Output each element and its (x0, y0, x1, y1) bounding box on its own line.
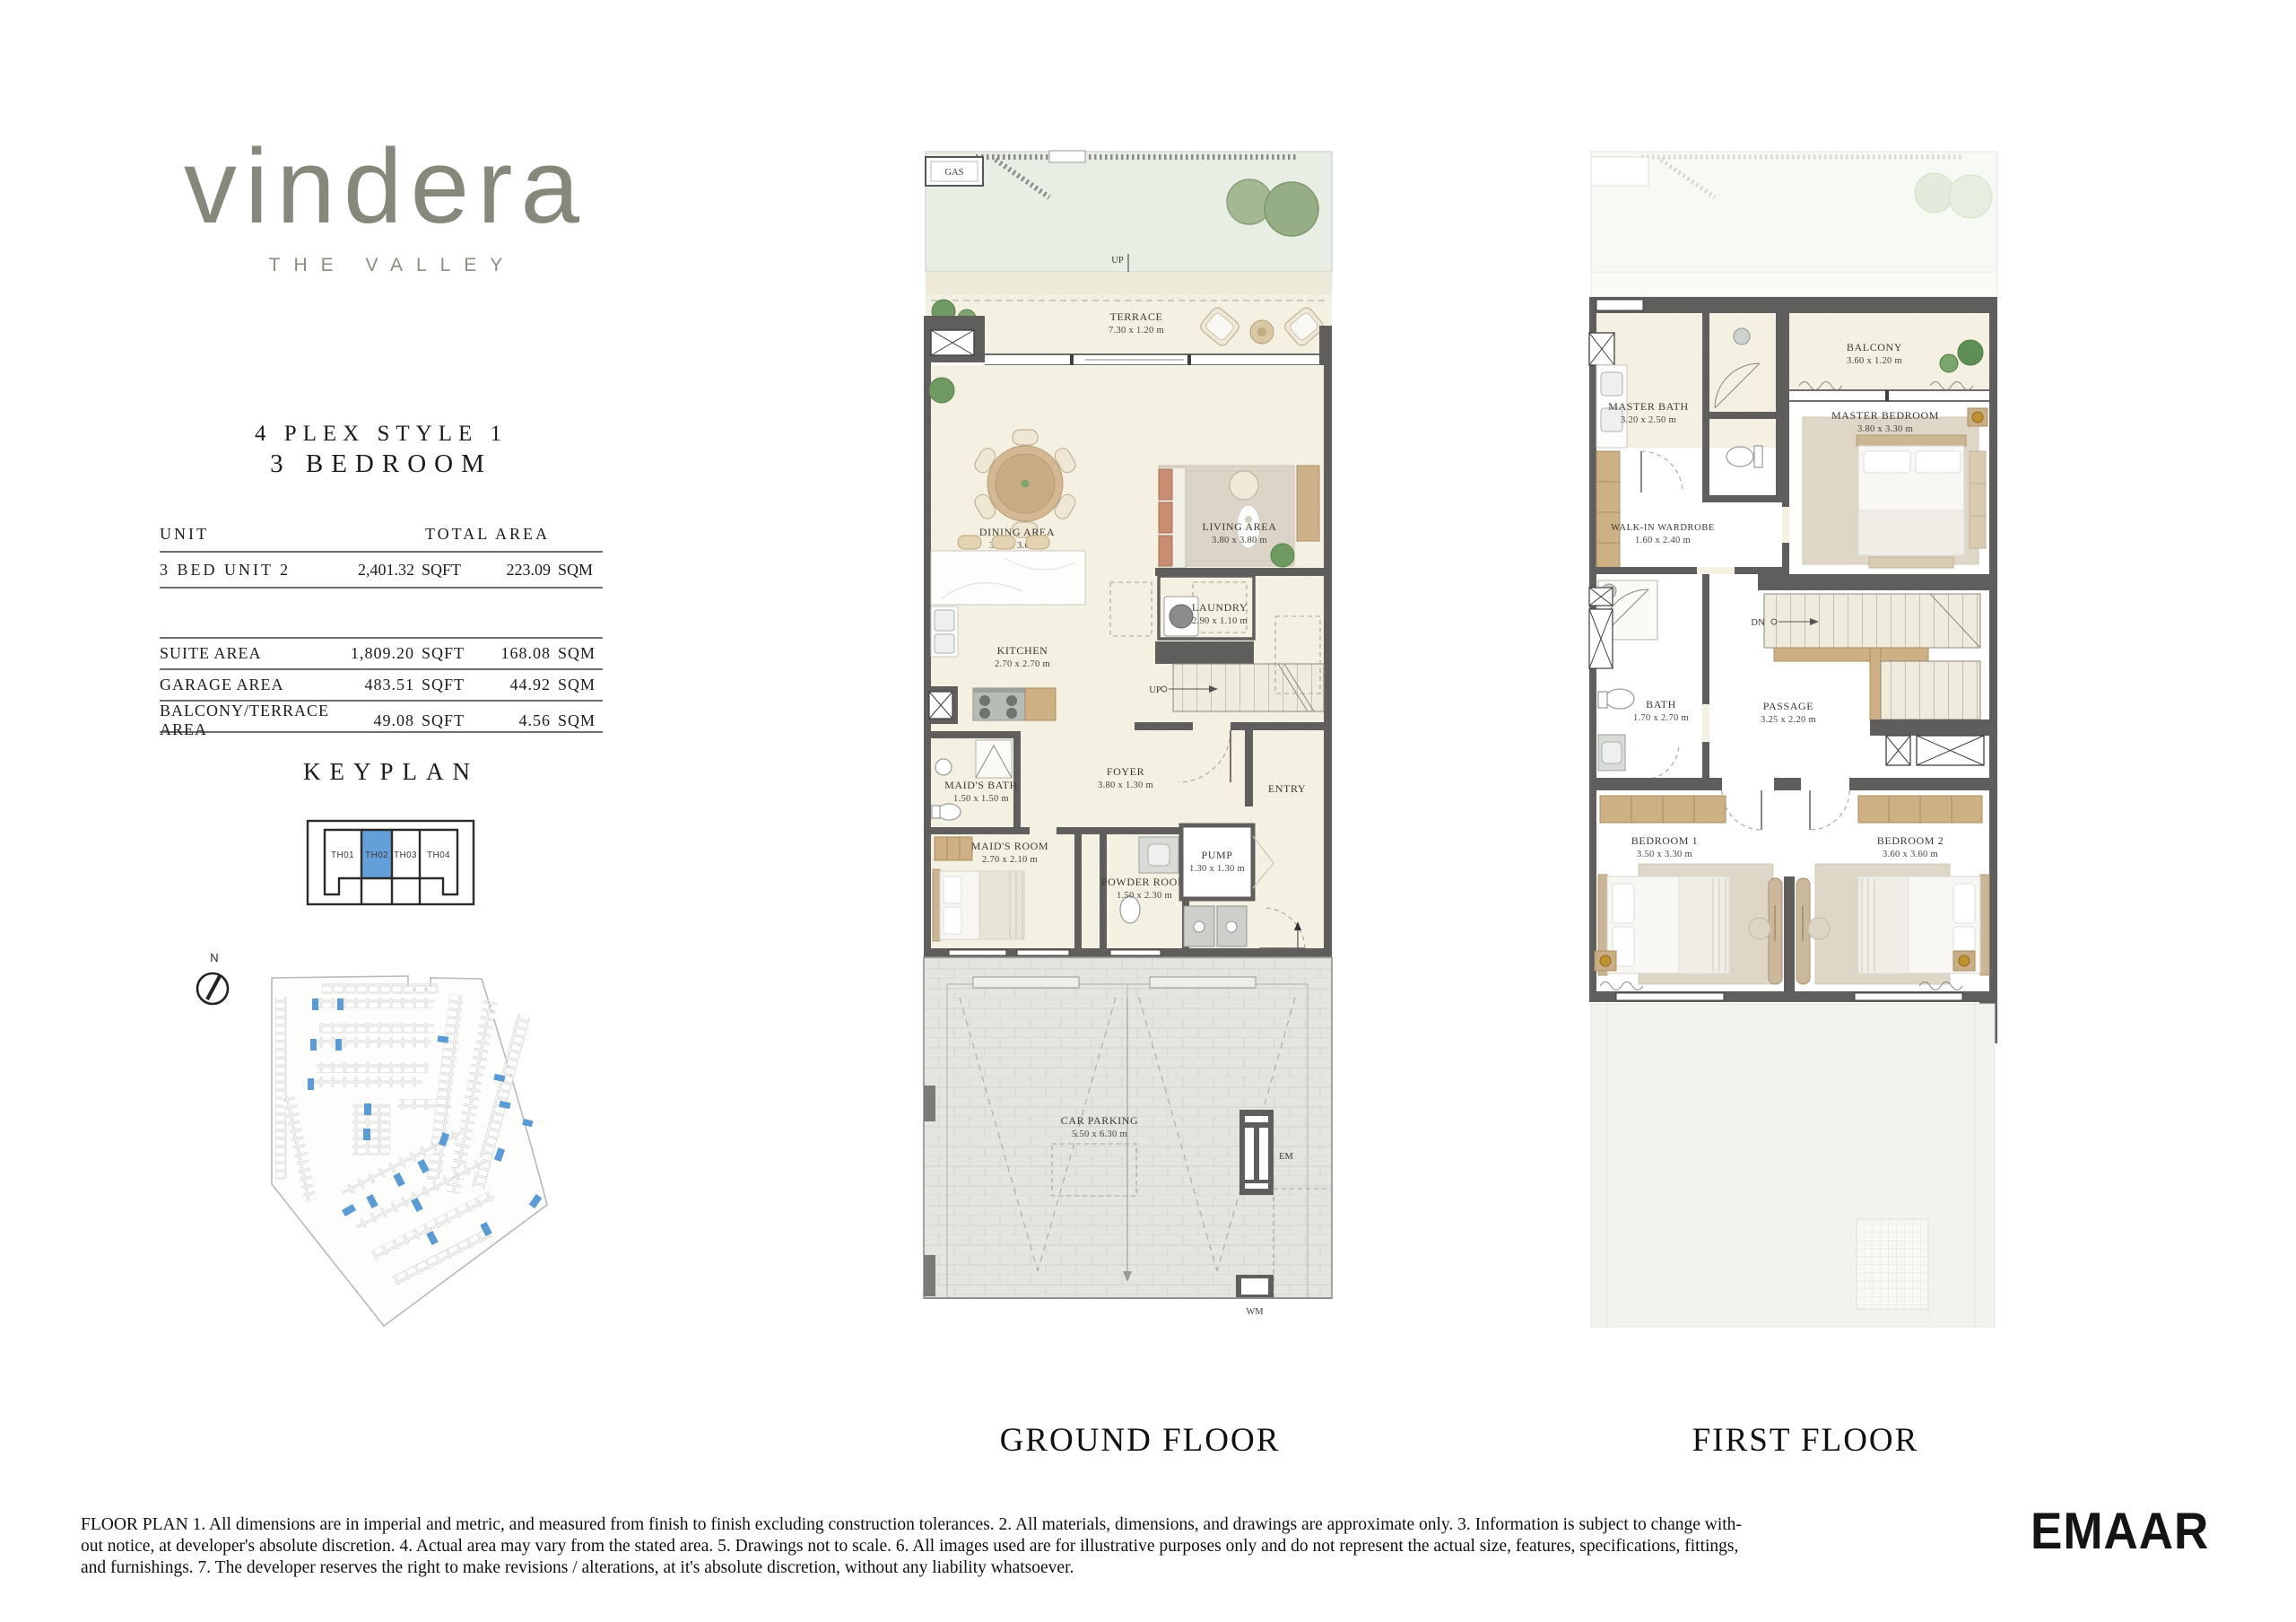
plant-icon (1940, 354, 1958, 372)
master-bedroom-label: MASTER BEDROOM (1831, 409, 1939, 422)
keyplan-title: KEYPLAN (248, 758, 535, 786)
living-label: LIVING AREA (1203, 520, 1277, 533)
svg-text:3.25 x 2.20 m: 3.25 x 2.20 m (1761, 715, 1816, 725)
keyplan-unit-th02: TH02 (365, 850, 388, 860)
svg-text:7.30 x 1.20 m: 7.30 x 1.20 m (1109, 326, 1164, 336)
keyplan-unit-th03: TH03 (394, 850, 417, 860)
svg-text:3.60 x 3.60 m: 3.60 x 3.60 m (1883, 850, 1938, 859)
emaar-logo: EMAAR (2031, 1502, 2209, 1561)
master-bedroom: MASTER BEDROOM 3.80 x 3.30 m (1782, 401, 1987, 571)
unit-sqm-unit: SQM (558, 561, 603, 580)
bedroom2-label: BEDROOM 2 (1877, 834, 1944, 847)
lamp-icon (1972, 412, 1983, 423)
col-total-area: TOTAL AREA (425, 525, 550, 544)
unit-sqft-unit: SQFT (422, 561, 481, 580)
gas-label: GAS (944, 168, 963, 178)
disclaimer-line3: and furnishings. 7. The developer reserv… (81, 1557, 1742, 1579)
svg-text:2.70 x 2.70 m: 2.70 x 2.70 m (995, 659, 1050, 669)
tv-console (1297, 466, 1319, 541)
svg-text:1.50 x 2.30 m: 1.50 x 2.30 m (1117, 891, 1172, 901)
pouf (1749, 918, 1770, 939)
table-row-unit: 3 BED UNIT 2 2,401.32 SQFT 223.09 SQM (160, 553, 603, 589)
floorplan-brochure-page: { "brand": {"logo": "vindera", "tagline"… (0, 0, 2296, 1622)
unit-sqft: 2,401.32 (339, 561, 422, 580)
unit-label: 3 BED UNIT 2 (160, 561, 339, 580)
pouf (1808, 918, 1830, 939)
foyer-label: FOYER (1107, 765, 1144, 778)
sink (935, 610, 954, 631)
svg-text:3.20 x 2.50 m: 3.20 x 2.50 m (1621, 415, 1676, 425)
toilet (1605, 689, 1634, 709)
maid-bed (933, 869, 1024, 941)
svg-text:1.60 x 2.40 m: 1.60 x 2.40 m (1635, 536, 1691, 545)
brand-block: vindera THE VALLEY (170, 133, 601, 276)
balcony-label: BALCONY (1847, 341, 1902, 353)
unit-sqm: 223.09 (481, 561, 558, 580)
detail-area-table: SUITE AREA 1,809.20 SQFT 168.08 SQM GARA… (160, 637, 603, 733)
tree-icon (1949, 175, 1992, 218)
unit-header: 4 PLEX STYLE 1 3 BEDROOM (166, 422, 596, 479)
car-parking-label: CAR PARKING (1061, 1114, 1139, 1127)
svg-text:2.90 x 1.10 m: 2.90 x 1.10 m (1192, 616, 1248, 626)
toilet (937, 804, 961, 820)
wardrobe-label: WALK-IN WARDROBE (1611, 523, 1715, 533)
exterior-wall (1589, 297, 1997, 313)
passage-label: PASSAGE (1763, 700, 1813, 712)
cushion-bench (1970, 451, 1986, 548)
bedroom-2: BEDROOM 2 3.60 x 3.60 m (1815, 796, 1989, 984)
bath: BATH 1.70 x 2.70 m (1589, 574, 1709, 780)
area-table: UNIT TOTAL AREA 3 BED UNIT 2 2,401.32 SQ… (160, 525, 603, 733)
svg-text:3.80 x 1.30 m: 3.80 x 1.30 m (1098, 780, 1153, 790)
wm-label: WM (1246, 1307, 1264, 1317)
ground-floor-plan: GAS UP TERRACE 7.30 x 1.20 m (924, 150, 1356, 1334)
pump-label: PUMP (1201, 849, 1232, 861)
table-row-balcony: BALCONY/TERRACE AREA 49.08 SQFT 4.56 SQM (160, 702, 603, 733)
armchair (1230, 471, 1258, 500)
ghost-garage-roof (1591, 1004, 1995, 1327)
staircase-down: DN PASSAGE 3.25 x 2.20 m (1751, 574, 1989, 736)
maids-bath-label: MAID'S BATH (944, 779, 1018, 791)
bedroom-count-line: 3 BEDROOM (166, 449, 596, 479)
master-bath-label: MASTER BATH (1608, 400, 1689, 413)
disclaimer-line1: FLOOR PLAN 1. All dimensions are in impe… (81, 1514, 1742, 1536)
sink (935, 634, 954, 653)
svg-text:1.50 x 1.50 m: 1.50 x 1.50 m (953, 794, 1009, 804)
water-meter (1236, 1275, 1274, 1298)
terrace-area: TERRACE 7.30 x 1.20 m (926, 272, 1332, 358)
sink (1601, 372, 1622, 396)
svg-text:2.70 x 2.10 m: 2.70 x 2.10 m (982, 855, 1038, 865)
entry-label: ENTRY (1268, 782, 1306, 795)
bath-label: BATH (1646, 698, 1676, 711)
sink (935, 759, 952, 775)
bed (1598, 875, 1729, 975)
master-bed (1857, 435, 1966, 568)
bedroom-1: BEDROOM 1 3.50 x 3.30 m (1595, 796, 1773, 984)
site-map (263, 969, 561, 1339)
garage: CAR PARKING 5.50 x 6.30 m EM WM (924, 957, 1332, 1317)
disclaimer-text: FLOOR PLAN 1. All dimensions are in impe… (81, 1514, 1742, 1579)
vindera-logo: vindera (170, 133, 601, 240)
svg-text:1.70 x 2.70 m: 1.70 x 2.70 m (1633, 713, 1689, 723)
keyplan-diagram: TH01 TH02 TH03 TH04 (301, 815, 481, 913)
table-row-garage: GARAGE AREA 483.51 SQFT 44.92 SQM (160, 670, 603, 702)
kitchen-island (931, 551, 1085, 605)
dn-label: DN (1751, 618, 1765, 628)
plex-style-line: 4 PLEX STYLE 1 (166, 422, 596, 447)
up-terrace-label: UP (1111, 256, 1124, 266)
svg-text:5.50 x 6.30 m: 5.50 x 6.30 m (1072, 1129, 1127, 1139)
svg-text:3.50 x 3.30 m: 3.50 x 3.30 m (1637, 850, 1692, 859)
col-unit: UNIT (160, 525, 209, 543)
lamp-icon (1959, 955, 1970, 966)
first-floor-title: FIRST FLOOR (1589, 1421, 2022, 1460)
bedroom1-label: BEDROOM 1 (1631, 834, 1698, 847)
laundry-label: LAUNDRY (1192, 601, 1248, 614)
shower-head (1734, 328, 1750, 344)
tree-icon (1915, 173, 1954, 213)
service-shafts (1886, 736, 1984, 765)
toilet (1726, 447, 1753, 467)
up-stairs-label: UP (1149, 685, 1161, 695)
svg-text:1.30 x 1.30 m: 1.30 x 1.30 m (1189, 864, 1245, 874)
walk-in-wardrobe: WALK-IN WARDROBE 1.60 x 2.40 m (1596, 451, 1789, 574)
svg-text:3.80 x 3.80 m: 3.80 x 3.80 m (1212, 536, 1267, 545)
plant-icon (929, 378, 954, 403)
electric-meter (1239, 1110, 1274, 1195)
kitchen-label: KITCHEN (997, 644, 1048, 657)
area-table-header: UNIT TOTAL AREA (160, 525, 603, 553)
balcony-area: BALCONY 3.60 x 1.20 m (1782, 313, 1989, 401)
terrace-label: TERRACE (1110, 310, 1163, 323)
plant-icon (1958, 340, 1983, 365)
disclaimer-line2: out notice, at developer's absolute disc… (81, 1536, 1742, 1557)
compass-needle (207, 976, 220, 999)
tree-icon (1265, 182, 1318, 236)
svg-text:3.80 x 3.30 m: 3.80 x 3.30 m (1857, 424, 1913, 434)
ground-floor-title: GROUND FLOOR (924, 1421, 1356, 1460)
compass: N (184, 949, 241, 1021)
table-row-suite: SUITE AREA 1,809.20 SQFT 168.08 SQM (160, 639, 603, 670)
powder-room-label: POWDER ROOM (1101, 876, 1187, 888)
maids-room-label: MAID'S ROOM (971, 840, 1048, 852)
keyplan-unit-th01: TH01 (331, 850, 354, 860)
first-floor-plan: BALCONY 3.60 x 1.20 m MASTER BATH 3.20 x… (1589, 150, 2022, 1334)
interior-wall (931, 827, 1191, 834)
ghost-garden (1591, 152, 1997, 297)
plant-icon (1271, 544, 1294, 567)
svg-text:3.60 x 1.20 m: 3.60 x 1.20 m (1847, 356, 1902, 366)
compass-north-label: N (210, 951, 218, 964)
brand-tagline: THE VALLEY (170, 255, 601, 276)
em-label: EM (1279, 1152, 1293, 1162)
lamp-icon (1600, 955, 1611, 966)
keyplan-unit-th04: TH04 (427, 850, 450, 860)
